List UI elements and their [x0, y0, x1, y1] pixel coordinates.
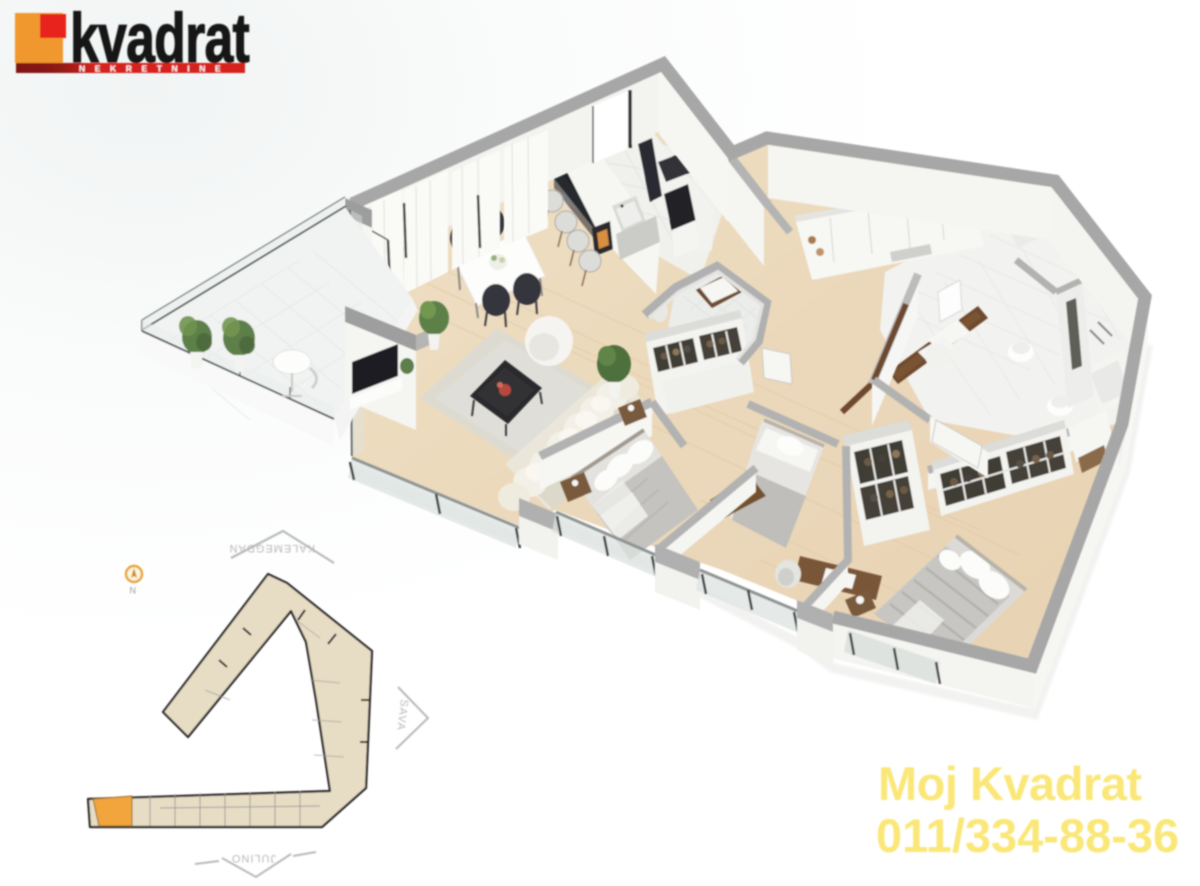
svg-text:011/334-88-36: 011/334-88-36 — [876, 809, 1179, 862]
svg-text:JULINO: JULINO — [231, 852, 276, 864]
svg-text:N: N — [130, 585, 137, 595]
svg-text:NEKRETNINE: NEKRETNINE — [79, 64, 230, 74]
svg-text:Moj Kvadrat: Moj Kvadrat — [878, 757, 1142, 810]
